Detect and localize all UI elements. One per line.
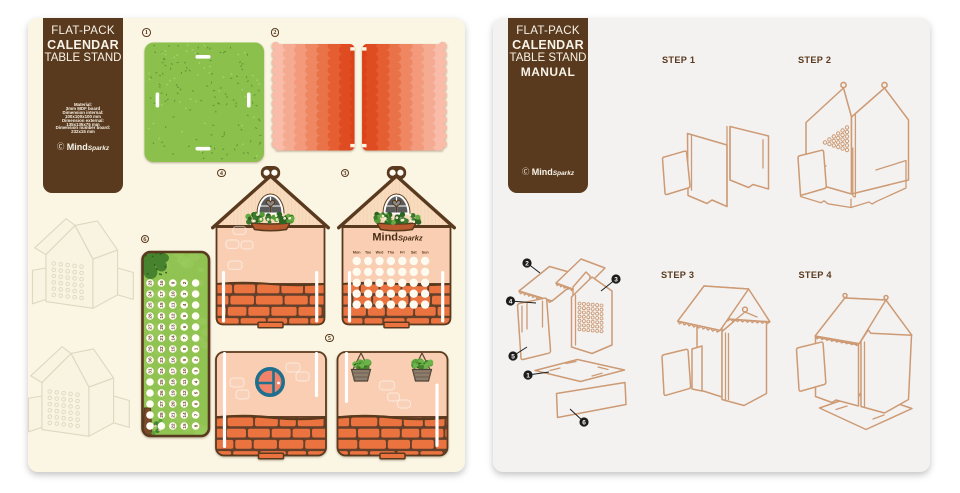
svg-text:9: 9	[171, 281, 176, 284]
svg-text:2: 2	[193, 358, 198, 361]
svg-text:20: 20	[171, 401, 176, 407]
svg-text:Mon: Mon	[353, 250, 361, 254]
svg-text:11: 11	[171, 302, 176, 307]
svg-text:Fri: Fri	[400, 250, 405, 254]
svg-text:28: 28	[148, 335, 153, 341]
svg-text:30: 30	[148, 357, 153, 363]
svg-text:17: 17	[171, 368, 176, 374]
svg-text:12: 12	[182, 390, 187, 396]
svg-text:15: 15	[182, 423, 187, 429]
svg-text:Sun: Sun	[422, 250, 430, 254]
svg-text:15: 15	[171, 346, 176, 352]
svg-text:6: 6	[193, 402, 198, 405]
svg-text:3: 3	[193, 369, 198, 372]
svg-text:21: 21	[171, 412, 176, 418]
svg-text:2: 2	[182, 281, 187, 284]
svg-text:Sat: Sat	[411, 250, 418, 254]
svg-text:18: 18	[159, 302, 164, 308]
svg-text:5: 5	[193, 391, 198, 394]
svg-text:28: 28	[159, 412, 164, 418]
svg-text:16: 16	[171, 357, 176, 363]
svg-text:8: 8	[193, 424, 198, 427]
svg-text:13: 13	[182, 401, 187, 407]
svg-text:12: 12	[171, 313, 176, 319]
svg-text:1: 1	[526, 372, 530, 379]
svg-text:16: 16	[159, 280, 164, 286]
svg-text:MindSparkz: MindSparkz	[372, 232, 423, 244]
svg-text:9: 9	[182, 358, 187, 361]
svg-text:25: 25	[148, 302, 153, 308]
svg-text:22: 22	[159, 346, 164, 352]
svg-text:23: 23	[159, 357, 164, 363]
svg-text:4: 4	[193, 380, 198, 383]
svg-text:29: 29	[148, 346, 153, 352]
svg-text:14: 14	[171, 335, 176, 341]
svg-text:13: 13	[171, 324, 176, 330]
svg-text:3: 3	[182, 292, 187, 295]
svg-text:22: 22	[171, 423, 176, 429]
svg-text:21: 21	[159, 335, 164, 341]
svg-text:Thu: Thu	[388, 250, 396, 254]
svg-text:25: 25	[159, 379, 164, 385]
svg-text:11: 11	[182, 379, 187, 384]
svg-text:4: 4	[509, 298, 513, 305]
svg-text:19: 19	[171, 390, 176, 396]
svg-text:18: 18	[171, 379, 176, 385]
svg-text:Wed: Wed	[376, 250, 384, 254]
svg-text:10: 10	[182, 368, 187, 374]
svg-text:24: 24	[159, 368, 164, 374]
svg-text:26: 26	[148, 313, 153, 319]
svg-text:Tue: Tue	[365, 250, 371, 254]
svg-text:24: 24	[148, 291, 153, 297]
svg-text:5: 5	[511, 353, 515, 360]
svg-text:20: 20	[159, 324, 164, 330]
svg-text:7: 7	[182, 336, 187, 339]
svg-text:14: 14	[182, 412, 187, 418]
svg-text:8: 8	[182, 347, 187, 350]
svg-text:27: 27	[148, 324, 153, 330]
svg-text:5: 5	[182, 314, 187, 317]
svg-text:6: 6	[582, 419, 586, 426]
svg-text:31: 31	[148, 368, 153, 374]
svg-text:27: 27	[159, 401, 164, 407]
svg-text:26: 26	[159, 390, 164, 396]
svg-text:3: 3	[614, 276, 618, 283]
svg-text:1: 1	[193, 347, 198, 350]
svg-text:6: 6	[182, 325, 187, 328]
svg-text:7: 7	[193, 413, 198, 416]
svg-text:10: 10	[171, 291, 176, 297]
svg-text:19: 19	[159, 313, 164, 319]
svg-text:23: 23	[148, 280, 153, 286]
svg-text:4: 4	[182, 303, 187, 306]
svg-text:17: 17	[159, 291, 164, 297]
svg-text:2: 2	[525, 260, 529, 267]
